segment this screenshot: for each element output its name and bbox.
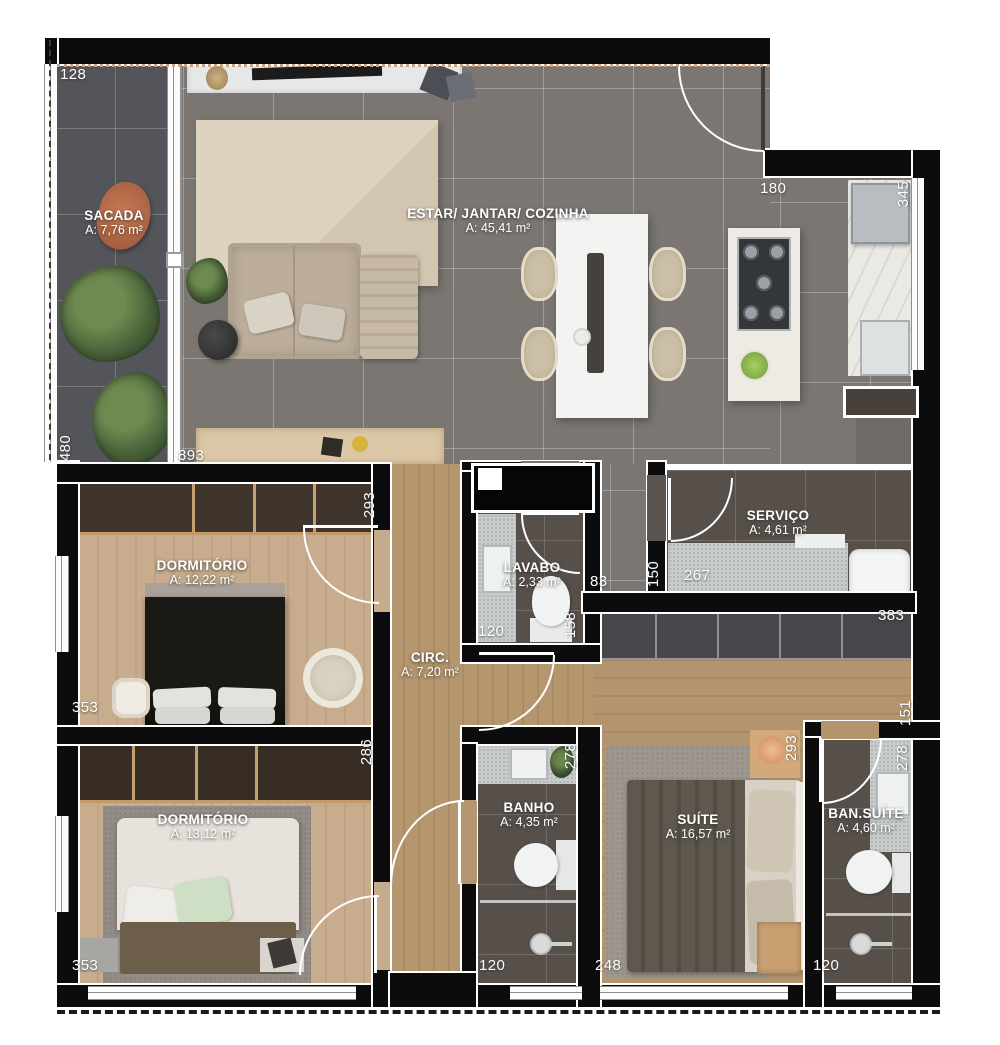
dim-bansuite-depth: 278 <box>895 738 911 778</box>
burner-center <box>756 275 772 291</box>
label-estar: ESTAR/ JANTAR/ COZINHA A: 45,41 m² <box>407 206 589 235</box>
sofa-side-plant <box>186 258 228 304</box>
room-area: A: 45,41 m² <box>407 221 589 235</box>
sideboard-book <box>321 437 343 458</box>
label-dorm2: DORMITÓRIO A: 13,12 m² <box>158 812 249 841</box>
dorm2-pillow-green <box>173 876 233 928</box>
room-name: BAN.SUÍTE <box>828 806 903 821</box>
lavabo-shaft-notch <box>478 468 502 490</box>
wall-top-left-stub <box>45 38 57 64</box>
wall-top <box>57 38 770 64</box>
label-sacada: SACADA A: 7,76 m² <box>84 208 144 237</box>
sideboard <box>196 428 444 464</box>
room-name: LAVABO <box>503 560 561 575</box>
room-name: SUÍTE <box>666 812 731 827</box>
dim-dorm1-width: 353 <box>72 700 98 716</box>
banho-toilet-bowl <box>514 843 558 887</box>
dashed-line-left <box>49 40 51 460</box>
dim-kitchen-recess: 180 <box>760 181 786 197</box>
room-name: SACADA <box>84 208 144 223</box>
dim-lavabo-width: 120 <box>478 624 504 640</box>
dorm1-pillow-3 <box>155 707 210 724</box>
closet-divider <box>779 610 781 658</box>
console-plant <box>206 66 228 90</box>
window-dorm2-left <box>55 816 69 912</box>
window-kitchen-right <box>911 178 924 370</box>
kitchen-sink <box>860 320 910 376</box>
washing-machine <box>849 549 910 599</box>
room-area: A: 4,61 m² <box>747 523 810 537</box>
floor-plan: SACADA A: 7,76 m² ESTAR/ JANTAR/ COZINHA… <box>0 0 1000 1045</box>
room-area: A: 2,33 m² <box>503 575 561 589</box>
room-area: A: 4,60 m² <box>828 821 903 835</box>
dim-dorm1-depth: 293 <box>362 485 378 525</box>
closet-divider <box>841 610 843 658</box>
balcony-plant-small <box>92 372 172 466</box>
table-flowers <box>575 330 589 344</box>
room-name: SERVIÇO <box>747 508 810 523</box>
fruit-bowl <box>741 352 768 379</box>
room-area: A: 7,20 m² <box>401 665 459 679</box>
dim-suite-width: 248 <box>595 958 621 974</box>
rattan-chair <box>303 648 363 708</box>
bansuite-toilet-bowl <box>846 850 892 894</box>
dim-sacada-height: 480 <box>58 428 74 468</box>
wall-living-dorm1 <box>57 464 390 482</box>
balcony-plant-large <box>60 266 160 362</box>
bansuite-shower-divider <box>826 913 914 916</box>
dim-lavabo-depth: 158 <box>563 605 579 645</box>
label-suite: SUÍTE A: 16,57 m² <box>666 812 731 841</box>
shower-arm <box>548 942 572 946</box>
window-dorm2-bottom <box>88 986 356 1000</box>
wall-dorm-divider <box>57 727 390 744</box>
burner-2 <box>769 244 785 260</box>
dorm1-pillow-4 <box>220 707 275 724</box>
room-area: A: 7,76 m² <box>84 223 144 237</box>
room-area: A: 16,57 m² <box>666 827 731 841</box>
label-banho: BANHO A: 4,35 m² <box>500 800 558 829</box>
wardrobe-divider <box>132 746 135 800</box>
dim-dorm2-width: 353 <box>72 958 98 974</box>
sideboard-flowers <box>352 436 368 452</box>
room-name: CIRC. <box>401 650 459 665</box>
console-books-2 <box>446 72 477 103</box>
wardrobe-divider <box>192 480 195 532</box>
wardrobe-divider <box>255 746 258 800</box>
cooktop <box>737 237 791 331</box>
burner-4 <box>769 305 785 321</box>
dim-servico-width: 267 <box>684 568 710 584</box>
window-suite-bottom <box>600 986 788 1000</box>
dim-sacada-width: 128 <box>60 67 86 83</box>
dorm1-stool <box>112 678 150 718</box>
label-dorm1: DORMITÓRIO A: 12,22 m² <box>157 558 248 587</box>
dining-chair-2 <box>521 327 558 381</box>
label-lavabo: LAVABO A: 2,33 m² <box>503 560 561 589</box>
dim-servico-left: 150 <box>646 554 662 594</box>
shower-divider <box>480 900 580 903</box>
dining-chair-1 <box>521 247 558 301</box>
room-name: ESTAR/ JANTAR/ COZINHA <box>407 206 589 221</box>
suite-bed-duvet <box>627 780 745 972</box>
dim-suite-depth: 293 <box>784 728 800 768</box>
window-banho-bottom <box>510 986 582 1000</box>
window-bansuite-bottom <box>836 986 912 1000</box>
wall-circ-bottom-pier <box>390 973 476 1007</box>
closet-divider <box>717 610 719 658</box>
window-dorm1-left <box>55 556 69 652</box>
closet-divider <box>655 610 657 658</box>
room-area: A: 13,12 m² <box>158 827 249 841</box>
dim-bansuite-width: 120 <box>813 958 839 974</box>
servico-door-gap <box>647 475 666 541</box>
table-runner <box>587 253 604 373</box>
burner-3 <box>743 305 759 321</box>
suite-lamp <box>758 736 786 764</box>
burner-1 <box>743 244 759 260</box>
label-servico: SERVIÇO A: 4,61 m² <box>747 508 810 537</box>
dorm2-wardrobe <box>80 746 373 803</box>
wall-suite-top <box>583 593 915 612</box>
wardrobe-divider <box>195 746 198 800</box>
room-name: DORMITÓRIO <box>158 812 249 827</box>
label-bansuite: BAN.SUÍTE A: 4,60 m² <box>828 806 903 835</box>
room-area: A: 12,22 m² <box>157 573 248 587</box>
kitchen-hall-floor <box>856 417 915 464</box>
suite-pillow-1 <box>747 789 796 873</box>
dim-hall-width: 151 <box>898 693 914 733</box>
room-name: BANHO <box>500 800 558 815</box>
sofa-cushion-2 <box>298 303 346 341</box>
dim-banho-width: 120 <box>479 958 505 974</box>
dorm1-pillow-2 <box>218 687 277 709</box>
bansuite-door-gap <box>821 721 879 739</box>
label-circ: CIRC. A: 7,20 m² <box>401 650 459 679</box>
dining-chair-3 <box>649 247 686 301</box>
dashed-line-bottom <box>57 1010 940 1014</box>
chaise-lounger <box>360 254 418 359</box>
room-name: DORMITÓRIO <box>157 558 248 573</box>
dim-shaft-gap: 83 <box>590 574 608 590</box>
sliding-door-handle <box>166 252 183 268</box>
dining-chair-4 <box>649 327 686 381</box>
suite-bench <box>757 922 801 974</box>
wardrobe-divider <box>253 480 256 532</box>
dim-kitchen-depth: 345 <box>896 174 912 214</box>
cabinet-framed <box>846 389 916 415</box>
dotted-line-top <box>57 64 770 67</box>
bansuite-toilet-tank <box>892 853 910 893</box>
sofa-seam <box>293 245 295 357</box>
banho-toilet-tank <box>556 840 576 890</box>
wall-kitchen-top <box>765 150 937 176</box>
banho-sink <box>510 748 548 780</box>
dim-suite-closet: 383 <box>878 608 904 624</box>
side-table <box>198 320 238 360</box>
dim-dorm2-depth: 286 <box>359 732 375 772</box>
suite-closet <box>593 610 913 660</box>
dim-banho-depth: 278 <box>563 736 579 776</box>
bansuite-shower-arm <box>868 942 892 946</box>
dim-living-width: 893 <box>178 448 204 464</box>
room-area: A: 4,35 m² <box>500 815 558 829</box>
